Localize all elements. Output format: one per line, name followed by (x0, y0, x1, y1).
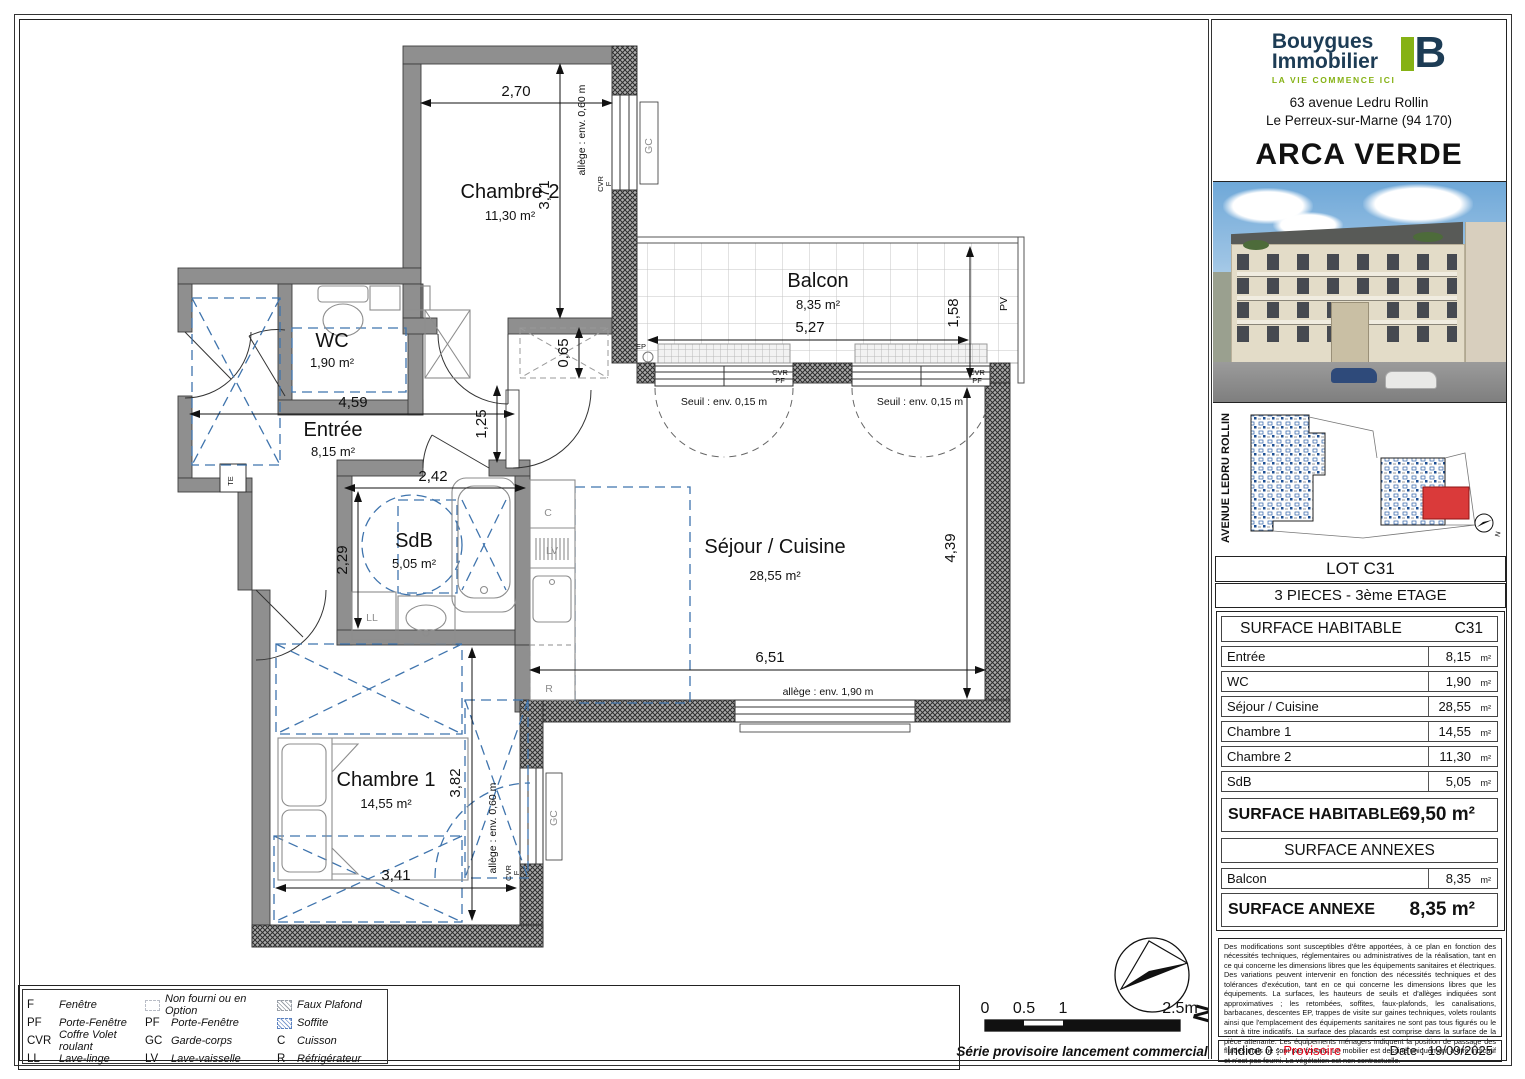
bouygues-logo: Bouygues Immobilier LA VIE COMMENCE ICI … (1212, 32, 1506, 85)
row-label: Séjour / Cuisine (1227, 697, 1319, 717)
type-floor-title: 3 PIECES - 3ème ETAGE (1215, 583, 1506, 608)
total-value: 69,50 m² (1399, 799, 1475, 831)
row-label: Chambre 2 (1227, 747, 1291, 767)
balcony-band (1237, 272, 1457, 276)
legend-abbr: C (277, 1035, 297, 1047)
row-label: SdB (1227, 772, 1252, 792)
legend-abbr: F (27, 999, 59, 1011)
table-row: Chambre 114,55m² (1221, 721, 1498, 742)
roof-plant (1243, 240, 1269, 250)
building-photo (1213, 181, 1506, 403)
legend-item: FFenêtre (27, 993, 145, 1017)
date-label: Date : 19/09/2025 (1390, 1041, 1493, 1061)
project-title: ARCA VERDE (1212, 138, 1506, 172)
site-north-letter: N (1493, 530, 1501, 537)
table-row: Séjour / Cuisine28,55m² (1221, 696, 1498, 717)
hatch-blue-icon (277, 1018, 292, 1029)
legend-label: Porte-Fenêtre (171, 1017, 239, 1029)
table-row: SdB5,05m² (1221, 771, 1498, 792)
legend-item: PFPorte-Fenêtre (145, 1017, 277, 1029)
avenue-label: AVENUE LEDRU ROLLIN (1220, 413, 1232, 543)
row-value: 28,55 (1438, 697, 1471, 717)
annex-row: Balcon8,35m² (1221, 868, 1498, 889)
dashed-box-icon (145, 1000, 160, 1011)
legend-item: RRéfrigérateur (277, 1053, 381, 1065)
row-unit: m² (1481, 773, 1492, 793)
legend-item: CCuisson (277, 1029, 381, 1053)
floorplan-sheet: { "panel": { "logo": {"line1": "Bouygues… (0, 0, 1525, 1079)
title-block-header: Bouygues Immobilier LA VIE COMMENCE ICI … (1212, 20, 1506, 181)
highlighted-lot (1423, 487, 1469, 519)
annex-total-label: SURFACE ANNEXE (1228, 894, 1375, 926)
table-row: Chambre 211,30m² (1221, 746, 1498, 767)
table-header-right: C31 (1455, 617, 1483, 641)
annex-header: SURFACE ANNEXES (1221, 838, 1498, 863)
surface-table: SURFACE HABITABLE C31 Entrée8,15m² WC1,9… (1216, 611, 1505, 931)
row-label: Balcon (1227, 869, 1267, 889)
indice-label: Indice 0 : (1227, 1043, 1280, 1058)
row-label: Chambre 1 (1227, 722, 1291, 742)
window-row (1237, 254, 1457, 270)
row-unit: m² (1481, 723, 1492, 743)
neighbor-building (1465, 222, 1506, 362)
building-a-footprint (1251, 415, 1325, 531)
legend-label: Porte-Fenêtre (59, 1017, 127, 1029)
row-unit: m² (1481, 748, 1492, 768)
annex-total-value: 8,35 m² (1410, 894, 1475, 926)
site-plan-drawing: AVENUE LEDRU ROLLIN N (1213, 403, 1506, 552)
legend-item: GCGarde-corps (145, 1029, 277, 1053)
legend-item: LLLave-linge (27, 1053, 145, 1065)
table-row: Entrée8,15m² (1221, 646, 1498, 667)
indice-value: Provisoire (1283, 1043, 1341, 1058)
legend-label: Soffite (297, 1017, 328, 1029)
legend-label: Faux Plafond (297, 999, 362, 1011)
car-white (1385, 371, 1437, 389)
address-line2: Le Perreux-sur-Marne (94 170) (1212, 112, 1506, 130)
legend-abbr: CVR (27, 1035, 59, 1047)
side-building (1213, 272, 1233, 362)
row-value: 8,35 (1446, 869, 1471, 889)
legend-item: Soffite (277, 1017, 381, 1029)
car-blue (1331, 368, 1377, 383)
row-label: WC (1227, 672, 1249, 692)
legend-item: CVRCoffre Volet roulant (27, 1029, 145, 1053)
logo-mark: B (1401, 43, 1446, 73)
disclaimer-text: Des modifications sont susceptibles d'êt… (1218, 938, 1502, 1037)
legend-abbr: R (277, 1053, 297, 1065)
row-unit: m² (1481, 673, 1492, 693)
legend-item: PFPorte-Fenêtre (27, 1017, 145, 1029)
lot-title: LOT C31 (1215, 556, 1506, 582)
row-value: 5,05 (1446, 772, 1471, 792)
legend-item: Non fourni ou en Option (145, 993, 277, 1017)
hatch-gray-icon (277, 1000, 292, 1011)
legend: FFenêtre PFPorte-Fenêtre CVRCoffre Volet… (22, 989, 388, 1064)
legend-label: Cuisson (297, 1035, 337, 1047)
logo-green-block-icon (1401, 37, 1414, 71)
row-value: 14,55 (1438, 722, 1471, 742)
legend-label: Fenêtre (59, 999, 97, 1011)
table-row: WC1,90m² (1221, 671, 1498, 692)
table-header: SURFACE HABITABLE C31 (1221, 616, 1498, 642)
annex-total-row: SURFACE ANNEXE 8,35 m² (1221, 893, 1498, 927)
balcony-band (1237, 296, 1457, 300)
window-row (1237, 278, 1457, 294)
logo-tagline: LA VIE COMMENCE ICI (1272, 75, 1396, 85)
legend-abbr: LL (27, 1053, 59, 1065)
legend-label: Lave-linge (59, 1053, 110, 1065)
table-header-left: SURFACE HABITABLE (1222, 617, 1420, 641)
address-line1: 63 avenue Ledru Rollin (1212, 94, 1506, 112)
row-unit: m² (1481, 648, 1492, 668)
logo-b-icon: B (1414, 33, 1446, 73)
legend-item: Faux Plafond (277, 993, 381, 1017)
legend-label: Réfrigérateur (297, 1053, 361, 1065)
legend-label: Garde-corps (171, 1035, 232, 1047)
legend-abbr: LV (145, 1053, 171, 1065)
roof-plant (1413, 232, 1443, 242)
row-unit: m² (1481, 698, 1492, 718)
building-entrance (1331, 302, 1369, 364)
site-plan: AVENUE LEDRU ROLLIN N (1213, 402, 1506, 554)
legend-label: Coffre Volet roulant (59, 1029, 145, 1053)
legend-label: Non fourni ou en Option (165, 993, 277, 1017)
legend-label: Lave-vaisselle (171, 1053, 241, 1065)
legend-abbr: GC (145, 1035, 171, 1047)
site-north-arrow: N (1475, 514, 1501, 537)
revision-bar: Indice 0 : Provisoire Date : 19/09/2025 (1218, 1040, 1502, 1062)
logo-line2: Immobilier (1272, 50, 1378, 73)
total-row: SURFACE HABITABLE 69,50 m² (1221, 798, 1498, 832)
row-value: 11,30 (1439, 747, 1471, 767)
cloud (1363, 184, 1473, 224)
row-value: 8,15 (1446, 647, 1471, 667)
row-label: Entrée (1227, 647, 1265, 667)
row-value: 1,90 (1446, 672, 1471, 692)
row-unit: m² (1481, 870, 1492, 890)
legend-item: LVLave-vaisselle (145, 1053, 277, 1065)
total-label: SURFACE HABITABLE (1228, 799, 1400, 831)
legend-abbr: PF (27, 1017, 59, 1029)
legend-abbr: PF (145, 1017, 171, 1029)
